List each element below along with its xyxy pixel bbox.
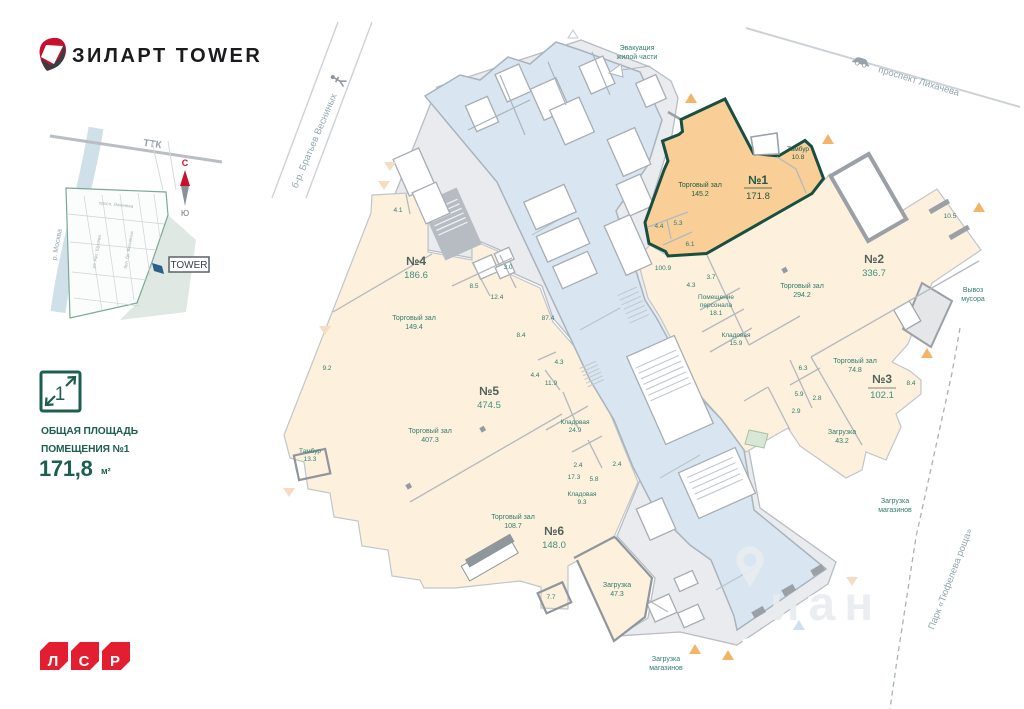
- svg-text:Торговый зал: Торговый зал: [678, 181, 722, 189]
- svg-text:Вывоз: Вывоз: [963, 287, 983, 294]
- svg-text:Загрузка: Загрузка: [828, 429, 856, 436]
- svg-text:Л: Л: [48, 653, 59, 670]
- svg-text:6.1: 6.1: [685, 241, 694, 248]
- svg-text:Р: Р: [110, 653, 120, 670]
- svg-text:ОБЩАЯ ПЛОЩАДЬ: ОБЩАЯ ПЛОЩАДЬ: [41, 426, 138, 437]
- svg-text:43.2: 43.2: [835, 438, 849, 445]
- svg-text:5.8: 5.8: [589, 476, 598, 483]
- svg-text:294.2: 294.2: [793, 292, 811, 299]
- svg-text:8.5: 8.5: [469, 283, 478, 290]
- svg-text:4.4: 4.4: [654, 223, 663, 230]
- svg-text:Кладовая: Кладовая: [721, 332, 751, 339]
- svg-text:Загрузка: Загрузка: [652, 656, 680, 663]
- svg-text:100.9: 100.9: [655, 265, 672, 272]
- svg-text:474.5: 474.5: [477, 400, 501, 411]
- svg-text:10.5: 10.5: [944, 213, 957, 220]
- svg-text:5.3: 5.3: [673, 220, 682, 227]
- svg-text:7.7: 7.7: [546, 594, 555, 601]
- svg-text:10.8: 10.8: [792, 154, 805, 161]
- svg-text:3.7: 3.7: [706, 274, 715, 281]
- svg-text:С: С: [182, 158, 189, 168]
- svg-text:Торговый зал: Торговый зал: [780, 282, 824, 290]
- svg-text:№4: №4: [406, 254, 426, 268]
- svg-text:87.4: 87.4: [542, 315, 555, 322]
- svg-text:С: С: [79, 653, 90, 670]
- svg-text:Торговый зал: Торговый зал: [408, 427, 452, 435]
- svg-text:8.4: 8.4: [906, 380, 915, 387]
- svg-text:Тамбур: Тамбур: [299, 447, 321, 455]
- svg-text:186.6: 186.6: [404, 270, 428, 281]
- svg-text:Торговый зал: Торговый зал: [833, 357, 877, 365]
- svg-text:2.8: 2.8: [812, 395, 821, 402]
- svg-text:8.4: 8.4: [516, 332, 525, 339]
- svg-text:108.7: 108.7: [504, 523, 522, 530]
- svg-text:171.8: 171.8: [746, 191, 770, 202]
- svg-text:407.3: 407.3: [421, 437, 439, 444]
- svg-text:Загрузка: Загрузка: [603, 582, 631, 589]
- svg-text:336.7: 336.7: [862, 268, 886, 279]
- svg-text:47.3: 47.3: [610, 591, 624, 598]
- svg-text:№1: №1: [748, 173, 768, 187]
- svg-text:11.9: 11.9: [545, 380, 558, 387]
- svg-text:148.0: 148.0: [542, 540, 566, 551]
- svg-text:2.4: 2.4: [612, 461, 621, 468]
- svg-text:9.2: 9.2: [322, 365, 331, 372]
- svg-text:1: 1: [55, 384, 66, 405]
- svg-text:TOWER: TOWER: [170, 260, 207, 271]
- svg-text:Загрузка: Загрузка: [881, 498, 909, 505]
- svg-text:магазинов: магазинов: [878, 507, 912, 514]
- svg-text:12.4: 12.4: [491, 294, 504, 301]
- svg-text:жилой части: жилой части: [617, 53, 658, 61]
- svg-text:171,8: 171,8: [39, 456, 93, 481]
- svg-text:2.4: 2.4: [573, 462, 582, 469]
- svg-text:Ю: Ю: [181, 209, 189, 218]
- svg-text:Тамбур: Тамбур: [787, 145, 809, 153]
- svg-text:№6: №6: [544, 524, 564, 538]
- svg-text:иан: иан: [770, 578, 882, 631]
- svg-text:Торговый зал: Торговый зал: [491, 513, 535, 521]
- svg-text:Помещение: Помещение: [698, 294, 734, 301]
- svg-text:№2: №2: [864, 252, 884, 266]
- svg-text:персонала: персонала: [700, 302, 733, 309]
- svg-text:магазинов: магазинов: [649, 665, 683, 672]
- svg-text:4.3: 4.3: [686, 282, 695, 289]
- svg-text:Эвакуация: Эвакуация: [620, 45, 655, 52]
- svg-text:2.9: 2.9: [791, 408, 800, 415]
- svg-text:Торговый зал: Торговый зал: [392, 314, 436, 322]
- svg-text:ЗИЛАРТ TOWER: ЗИЛАРТ TOWER: [72, 45, 262, 67]
- svg-text:24.9: 24.9: [569, 427, 582, 434]
- svg-text:4.4: 4.4: [530, 372, 539, 379]
- svg-text:17.3: 17.3: [568, 474, 581, 481]
- svg-text:Кладовая: Кладовая: [560, 419, 590, 426]
- svg-text:13.3: 13.3: [304, 456, 317, 463]
- svg-text:4.3: 4.3: [554, 359, 563, 366]
- svg-text:74.8: 74.8: [848, 367, 862, 374]
- svg-text:4.1: 4.1: [393, 207, 402, 214]
- svg-text:№3: №3: [872, 372, 892, 386]
- svg-text:145.2: 145.2: [691, 191, 709, 198]
- svg-text:м²: м²: [101, 466, 111, 476]
- svg-text:6.3: 6.3: [798, 365, 807, 372]
- svg-text:5.9: 5.9: [794, 391, 803, 398]
- svg-text:3.0: 3.0: [503, 264, 512, 271]
- svg-text:мусора: мусора: [961, 296, 985, 303]
- svg-text:№5: №5: [479, 384, 499, 398]
- svg-text:149.4: 149.4: [405, 324, 423, 331]
- svg-text:9.3: 9.3: [577, 499, 586, 506]
- svg-text:15.9: 15.9: [730, 340, 743, 347]
- svg-text:Кладовая: Кладовая: [567, 491, 597, 498]
- svg-text:18.1: 18.1: [710, 310, 723, 317]
- svg-text:ПОМЕЩЕНИЯ №1: ПОМЕЩЕНИЯ №1: [41, 444, 130, 455]
- svg-text:102.1: 102.1: [870, 390, 894, 401]
